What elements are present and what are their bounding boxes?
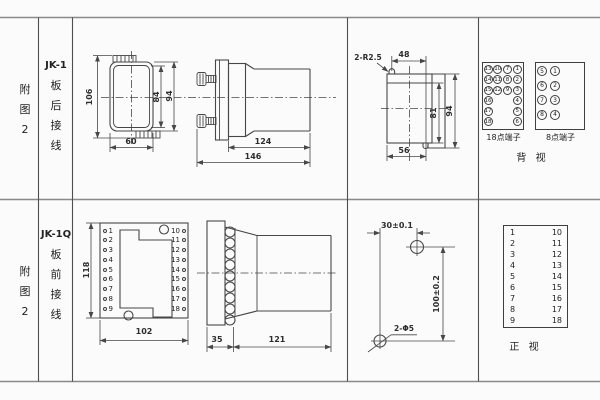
terminal-number: 14 [171,266,180,274]
table-number: 4 [510,260,524,271]
dim-35-label: 35 [207,335,227,345]
table-number: 11 [545,238,562,249]
radius-note-label: 2-R2.5 [352,53,384,63]
rear-wiring-side-view [197,60,310,167]
t18-col4: 1 2 3 4 5 6 [513,65,522,127]
terminal-dot [182,297,186,301]
terminal-stud-bottom [197,115,216,128]
terminal-number: 16 [171,285,180,293]
front-view-left-terminals: 1 2 3 4 5 6 7 8 9 [103,227,120,313]
dim-30-label: 30±0.1 [377,221,417,231]
table-number: 1 [510,227,524,238]
table-number: 3 [510,249,524,260]
terminal-number: 11 [171,236,180,244]
dim-94-label: 94 [165,81,175,111]
terminal-circle: 1 [550,66,560,76]
terminal-dot [103,258,107,262]
terminal-number: 15 [171,275,180,283]
terminal-number: 8 [109,295,113,303]
fig-char: 2 [22,302,29,322]
terminal-number: 13 [171,256,180,264]
radius-leader [377,63,388,72]
terminal-circle: 6 [513,117,522,126]
terminal-dot [103,277,107,281]
terminal-circle: 2 [550,81,560,91]
terminal-number: 2 [109,236,113,244]
terminal-stud-top [197,73,216,86]
model-char: 接 [51,116,62,136]
fig-char: 附 [20,80,31,100]
fig-char: 图 [20,282,31,302]
terminal-circle: 5 [513,107,522,116]
table-number: 18 [545,315,562,326]
dim-84-label: 84 [152,82,162,112]
front-view-right-terminals: 10 11 12 13 14 15 16 17 18 [166,227,186,313]
figure-number-top: 附 图 2 [14,80,36,140]
dim-94b-label: 94 [445,96,455,126]
terminal-number: 7 [109,285,113,293]
dim-121-label: 121 [262,335,292,345]
table-number: 14 [545,271,562,282]
terminal-number: 12 [171,246,180,254]
terminal-circle: 13 [484,65,493,74]
dim-106-label: 106 [85,82,95,112]
terminal-dot [182,229,186,233]
terminal-number: 5 [109,266,113,274]
terminal-dot [182,248,186,252]
model-code: JK-1 [45,60,67,72]
terminal-dot [103,287,107,291]
table-number: 12 [545,249,562,260]
table-number: 9 [510,315,524,326]
terminal-dot [182,238,186,242]
dim-48-label: 48 [394,50,414,60]
figure-number-bottom: 附 图 2 [14,262,36,322]
manual-page: 附 图 2 JK-1 板 后 接 线 附 图 2 JK-1Q 板 前 接 线 1… [0,0,600,400]
fig-char: 附 [20,262,31,282]
terminal-number: 10 [171,227,180,235]
terminal-number: 1 [109,227,113,235]
t18-col3: 7 8 9 [503,65,512,95]
terminal-circle: 8 [503,75,512,84]
dim-102-label: 102 [129,327,159,337]
terminal-circle: 11 [493,75,502,84]
terminal-circle: 3 [513,86,522,95]
terminal-circle: 18 [484,117,493,126]
model-char: 后 [51,96,62,116]
terminal-dot [182,277,186,281]
terminal-circle: 3 [550,95,560,105]
center-lines [101,51,336,144]
terminal-dot [103,268,107,272]
terminal-circle: 12 [493,86,502,95]
table-number: 8 [510,304,524,315]
t18-col2: 10 11 12 [493,65,502,95]
dim-60-label: 60 [121,137,141,147]
keyway-slot [423,143,428,149]
terminal-circle: 6 [537,81,547,91]
terminal-circle: 7 [537,95,547,105]
model-code: JK-1Q [41,229,71,241]
terminal-circle: 2 [513,75,522,84]
table-number: 7 [510,293,524,304]
model-char: 接 [51,285,62,305]
table-number: 5 [510,271,524,282]
terminal-circle: 10 [493,65,502,74]
terminal-circle: 5 [537,66,547,76]
dim-81-label: 81 [429,98,439,128]
model-label-top: JK-1 板 后 接 线 [42,60,70,156]
terminal-dot [103,297,107,301]
front-wiring-side-view [197,221,336,352]
terminal-circle: 4 [513,96,522,105]
table-number: 16 [545,293,562,304]
terminal-circle: 1 [513,65,522,74]
fig-char: 图 [20,100,31,120]
fig-char: 2 [22,120,29,140]
t8-caption: 8点端子 [533,132,588,143]
mounting-hole [124,311,133,320]
hole-leader [368,335,391,352]
dim-146-label: 146 [238,152,268,162]
terminal-circle: 17 [484,107,493,116]
model-char: 板 [51,76,62,96]
t8-col2: 1 2 3 4 [550,66,560,120]
dim-100-label: 100±0.2 [432,272,442,316]
table-left-column: 1 2 3 4 5 6 7 8 9 [510,227,524,326]
terminal-circle: 14 [484,75,493,84]
dim-56-label: 56 [394,146,414,156]
terminal-circle: 16 [484,96,493,105]
terminal-dot [103,229,107,233]
table-number: 10 [545,227,562,238]
t18-col1: 13 14 15 16 17 18 [484,65,493,127]
table-number: 2 [510,238,524,249]
model-char: 线 [51,136,62,156]
terminal-number: 9 [109,305,113,313]
terminal-circle: 8 [537,110,547,120]
front-view-label: 正 视 [498,338,553,353]
model-char: 前 [51,265,62,285]
terminal-number: 18 [171,305,180,313]
terminal-block-top [113,56,136,63]
terminal-dot [103,238,107,242]
terminal-number: 3 [109,246,113,254]
case-outline [120,230,172,317]
terminal-circle: 15 [484,86,493,95]
model-char: 线 [51,305,62,325]
terminal-number: 17 [171,295,180,303]
center-lines [381,66,451,161]
terminal-dot [182,258,186,262]
terminal-dot [182,307,186,311]
table-number: 13 [545,260,562,271]
terminal-dot [103,307,107,311]
terminal-number: 6 [109,275,113,283]
table-number: 15 [545,282,562,293]
terminal-circle: 4 [550,110,560,120]
table-right-column: 10 11 12 13 14 15 16 17 18 [545,227,562,326]
model-char: 板 [51,245,62,265]
rear-view-label: 背 视 [505,149,560,164]
terminal-dot [182,287,186,291]
terminal-circle: 9 [503,86,512,95]
t18-caption: 18点端子 [476,132,531,143]
terminal-circle: 7 [503,65,512,74]
dim-124-label: 124 [248,137,278,147]
table-number: 17 [545,304,562,315]
model-label-bottom: JK-1Q 板 前 接 线 [40,229,72,325]
terminal-number: 4 [109,256,113,264]
hole-note-label: 2-Φ5 [384,324,424,334]
t8-col1: 5 6 7 8 [537,66,547,120]
dim-118-label: 118 [82,255,92,285]
terminal-dot [103,248,107,252]
terminal-dot [182,268,186,272]
table-number: 6 [510,282,524,293]
